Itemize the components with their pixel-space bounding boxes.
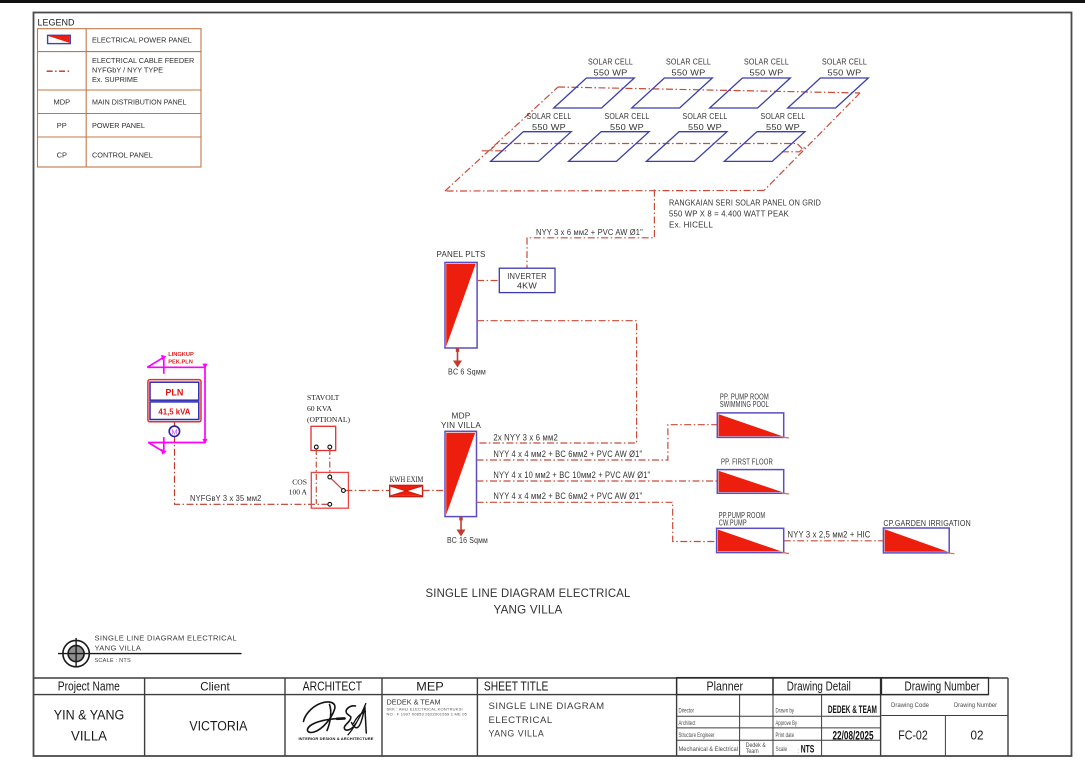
svg-text:NYY 4 x 4 мм2 + BC 6мм2 + PVC: NYY 4 x 4 мм2 + BC 6мм2 + PVC AW Ø1" xyxy=(493,449,642,459)
svg-text:NYY 3 x 2,5 мм2 + HIC: NYY 3 x 2,5 мм2 + HIC xyxy=(788,530,871,540)
svg-text:(OPTIONAL): (OPTIONAL) xyxy=(307,415,350,424)
svg-text:41,5 kVA: 41,5 kVA xyxy=(158,408,190,417)
svg-text:M: M xyxy=(171,427,177,436)
svg-text:BC 16 Sqмм: BC 16 Sqмм xyxy=(447,536,488,545)
svg-text:Approve By: Approve By xyxy=(776,721,798,727)
svg-text:MDP: MDP xyxy=(53,97,70,106)
svg-text:60 KVA: 60 KVA xyxy=(307,404,332,413)
svg-text:VILLA: VILLA xyxy=(71,729,107,744)
svg-text:ARCHITECT: ARCHITECT xyxy=(303,680,363,694)
svg-text:SOLAR CELL: SOLAR CELL xyxy=(683,111,728,121)
svg-text:NTS: NTS xyxy=(801,744,815,756)
svg-text:2x NYY 3 x 6 мм2: 2x NYY 3 x 6 мм2 xyxy=(493,432,558,442)
svg-text:POWER PANEL: POWER PANEL xyxy=(92,121,145,130)
svg-text:SHEET TITLE: SHEET TITLE xyxy=(484,680,549,694)
svg-text:SOLAR CELL: SOLAR CELL xyxy=(527,111,572,121)
svg-text:RANGKAIAN SERI SOLAR PANEL ON: RANGKAIAN SERI SOLAR PANEL ON GRID xyxy=(669,198,821,208)
svg-text:550 WP: 550 WP xyxy=(610,122,644,132)
svg-text:VICTORIA: VICTORIA xyxy=(189,718,247,733)
svg-text:NO : F 1997 00853 2622001559 1: NO : F 1997 00853 2622001559 1 ME 05 xyxy=(387,711,468,716)
svg-text:CW.PUMP: CW.PUMP xyxy=(719,519,747,528)
svg-text:MDP: MDP xyxy=(452,412,471,421)
svg-text:Ex. SUPRIME: Ex. SUPRIME xyxy=(92,75,138,84)
svg-text:ELECTRICAL CABLE FEEDER: ELECTRICAL CABLE FEEDER xyxy=(92,56,194,65)
svg-text:Print date: Print date xyxy=(776,733,795,739)
svg-text:550 WP: 550 WP xyxy=(672,68,706,78)
svg-text:YANG VILLA: YANG VILLA xyxy=(95,644,142,653)
svg-text:550 WP: 550 WP xyxy=(766,122,800,132)
svg-text:FC-02: FC-02 xyxy=(898,728,928,743)
svg-text:Drawn by: Drawn by xyxy=(776,709,795,715)
svg-text:BC 6 Sqмм: BC 6 Sqмм xyxy=(448,368,486,377)
svg-text:SOLAR CELL: SOLAR CELL xyxy=(588,57,633,67)
svg-text:YANG VILLA: YANG VILLA xyxy=(489,728,545,738)
svg-text:YIN & YANG: YIN & YANG xyxy=(54,707,125,722)
svg-text:Structure Engineer: Structure Engineer xyxy=(679,733,715,739)
svg-text:Project Name: Project Name xyxy=(58,680,120,694)
svg-text:COS: COS xyxy=(292,478,307,487)
svg-text:DEDEK & TEAM: DEDEK & TEAM xyxy=(828,704,877,716)
svg-text:ELECTRICAL POWER PANEL: ELECTRICAL POWER PANEL xyxy=(92,36,192,45)
svg-text:SOLAR CELL: SOLAR CELL xyxy=(666,57,711,67)
svg-text:550 WP X 8 = 4.400 WATT PEAK: 550 WP X 8 = 4.400 WATT PEAK xyxy=(669,209,789,219)
svg-text:4KW: 4KW xyxy=(517,281,537,290)
svg-text:SOLAR CELL: SOLAR CELL xyxy=(822,57,867,67)
svg-text:KWH EXIM: KWH EXIM xyxy=(390,475,424,484)
svg-text:LEGEND: LEGEND xyxy=(38,18,76,28)
svg-text:SOLAR CELL: SOLAR CELL xyxy=(761,111,806,121)
svg-text:SINGLE LINE DIAGRAM ELECTRICAL: SINGLE LINE DIAGRAM ELECTRICAL xyxy=(95,634,237,643)
svg-text:YANG VILLA: YANG VILLA xyxy=(494,602,563,616)
svg-text:ELECTRICAL: ELECTRICAL xyxy=(489,715,553,726)
svg-text:Drawing Number: Drawing Number xyxy=(905,680,980,694)
svg-text:CONTROL PANEL: CONTROL PANEL xyxy=(92,151,153,160)
svg-text:550 WP: 550 WP xyxy=(828,68,862,78)
svg-text:CP.GARDEN IRRIGATION: CP.GARDEN IRRIGATION xyxy=(883,519,971,528)
svg-text:PEK.PLN: PEK.PLN xyxy=(168,359,193,365)
svg-text:NYY 3 x 6 мм2 + PVC AW Ø1": NYY 3 x 6 мм2 + PVC AW Ø1" xyxy=(536,227,643,237)
svg-text:22/08/2025: 22/08/2025 xyxy=(833,731,874,743)
svg-text:SINGLE LINE DIAGRAM ELECTRICAL: SINGLE LINE DIAGRAM ELECTRICAL xyxy=(426,586,631,600)
svg-text:02: 02 xyxy=(971,728,984,743)
svg-text:100 A: 100 A xyxy=(289,488,308,497)
svg-text:Scale: Scale xyxy=(776,747,788,753)
svg-text:INTERIOR DESIGN & ARCHITECTURE: INTERIOR DESIGN & ARCHITECTURE xyxy=(298,736,373,741)
svg-text:SWIMMING POOL: SWIMMING POOL xyxy=(720,400,769,409)
svg-text:Architect: Architect xyxy=(679,721,696,727)
svg-text:Drawing Code: Drawing Code xyxy=(891,703,930,709)
svg-text:CP: CP xyxy=(57,151,67,160)
svg-text:Mechanical & Electrical: Mechanical & Electrical xyxy=(679,747,739,753)
svg-text::: : xyxy=(798,748,799,754)
svg-text:Planner: Planner xyxy=(707,680,744,694)
svg-text:PP. FIRST FLOOR: PP. FIRST FLOOR xyxy=(721,458,773,467)
svg-text:NYY 4 x 4 мм2 + BC 6мм2 + PVC: NYY 4 x 4 мм2 + BC 6мм2 + PVC AW Ø1" xyxy=(493,491,642,501)
svg-text:NYY 4 x 10 мм2 + BC 10мм2 + PV: NYY 4 x 10 мм2 + BC 10мм2 + PVC AW Ø1" xyxy=(493,470,650,480)
svg-text:INVERTER: INVERTER xyxy=(507,272,547,281)
svg-text:550 WP: 550 WP xyxy=(594,68,628,78)
svg-text:Director: Director xyxy=(679,709,695,715)
svg-text:DEDEK & TEAM: DEDEK & TEAM xyxy=(387,697,441,706)
svg-text:Ex. HICELL: Ex. HICELL xyxy=(669,220,713,230)
svg-text:Client: Client xyxy=(200,680,230,694)
svg-text:SINGLE LINE DIAGRAM: SINGLE LINE DIAGRAM xyxy=(489,701,605,712)
svg-text:SOLAR CELL: SOLAR CELL xyxy=(605,111,650,121)
svg-text:MAIN DISTRIBUTION PANEL: MAIN DISTRIBUTION PANEL xyxy=(92,98,187,106)
svg-text:PANEL PLTS: PANEL PLTS xyxy=(437,250,486,259)
svg-text:MEP: MEP xyxy=(416,680,444,694)
svg-text:SOLAR CELL: SOLAR CELL xyxy=(744,57,789,67)
svg-text:Team: Team xyxy=(746,749,759,755)
svg-text:NYFGвY 3 x 35 мм2: NYFGвY 3 x 35 мм2 xyxy=(190,493,262,503)
svg-text:PP: PP xyxy=(57,121,67,130)
svg-text:STAVOLT: STAVOLT xyxy=(307,393,340,402)
svg-text:PLN: PLN xyxy=(165,388,183,398)
svg-text:550 WP: 550 WP xyxy=(750,68,784,78)
svg-text:550 WP: 550 WP xyxy=(688,122,722,132)
svg-text:Drawing Detail: Drawing Detail xyxy=(787,680,851,694)
svg-text:Drawing Number: Drawing Number xyxy=(954,703,997,709)
svg-text:NYFGbY / NYY TYPE: NYFGbY / NYY TYPE xyxy=(92,66,163,75)
svg-text:550 WP: 550 WP xyxy=(532,122,566,132)
svg-text:LINGKUP: LINGKUP xyxy=(168,352,194,358)
svg-text:YIN VILLA: YIN VILLA xyxy=(441,421,481,430)
svg-text:SCALE : NTS: SCALE : NTS xyxy=(95,658,131,664)
